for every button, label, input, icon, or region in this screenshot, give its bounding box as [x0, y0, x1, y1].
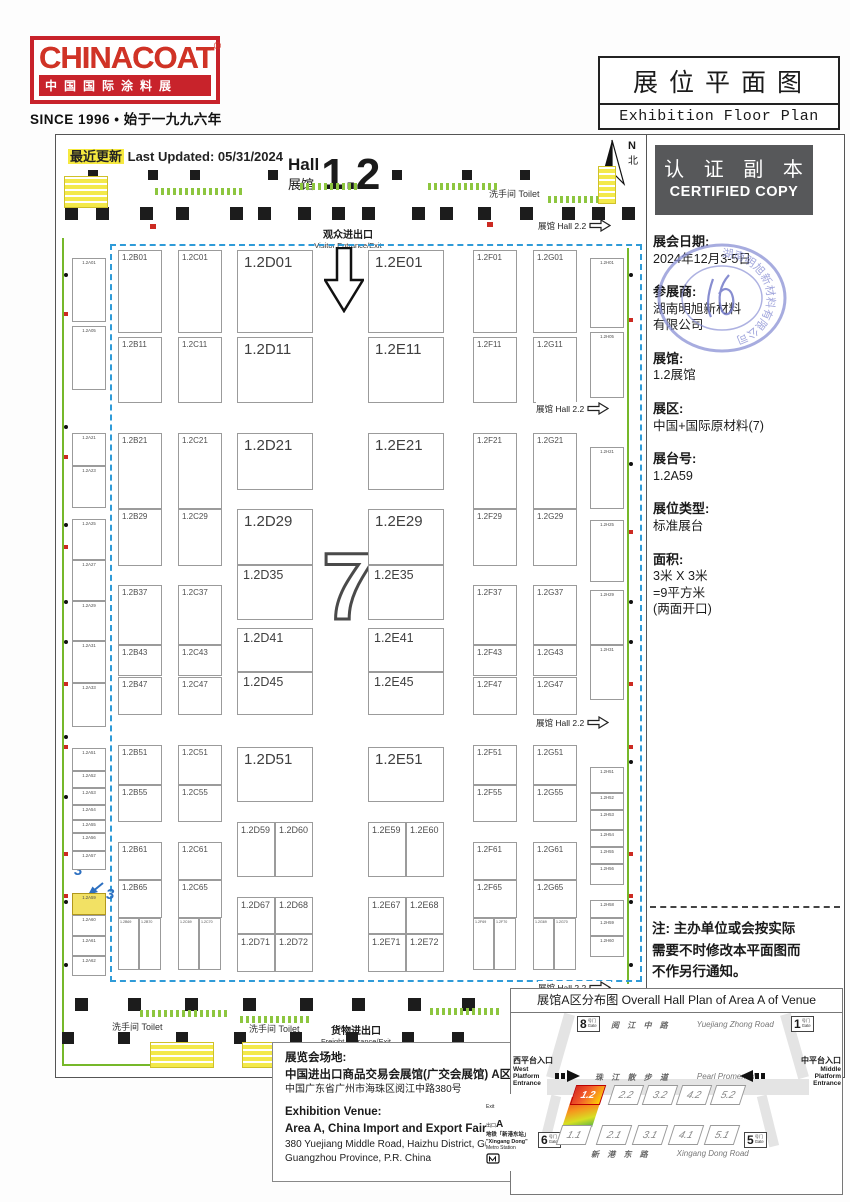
- disclaimer-note: 注: 主办单位或会按实际需要不时修改本平面图而不作另行通知。: [652, 918, 842, 983]
- pillar: [362, 207, 375, 220]
- booth-label: 1.2B29: [119, 510, 161, 521]
- booth-1.2D35: 1.2D35: [237, 565, 313, 620]
- booth-1.2B21: 1.2B21: [118, 433, 162, 509]
- booth-1.2E45: 1.2E45: [368, 672, 444, 715]
- column-dot: [64, 640, 68, 644]
- booth-label: 1.2F55: [474, 786, 516, 797]
- booth-label: 1.2B51: [119, 746, 161, 757]
- booth-1.2F11: 1.2F11: [473, 337, 517, 403]
- pillar: [392, 170, 402, 180]
- booth-label: 1.2H60: [591, 937, 623, 943]
- pillar: [478, 207, 491, 220]
- booth-1.2B47: 1.2B47: [118, 677, 162, 715]
- booth-label: 1.2D29: [238, 510, 312, 530]
- booth-1.2E68: 1.2E68: [406, 897, 444, 934]
- booth-label: 1.2B21: [119, 434, 161, 445]
- booth-1.2A60: 1.2A60: [72, 915, 106, 936]
- booth-label: 1.2D35: [238, 566, 312, 582]
- booth-1.2H52: 1.2H52: [590, 793, 624, 810]
- booth-1.2E29: 1.2E29: [368, 509, 444, 565]
- road-zh: 珠 江 散 步 道: [595, 1072, 671, 1083]
- booth-label: 1.2A52: [73, 772, 105, 778]
- booth-label: 1.2H59: [591, 919, 623, 925]
- overall-hall-plan: 展馆A区分布图 Overall Hall Plan of Area A of V…: [510, 988, 843, 1195]
- booth-label: 1.2F51: [474, 746, 516, 757]
- booth-1.2D29: 1.2D29: [237, 509, 313, 565]
- booth-1.2A21: 1.2A21: [72, 433, 106, 466]
- booth-1.2D45: 1.2D45: [237, 672, 313, 715]
- column-dot: [629, 640, 633, 644]
- booth-label: 1.2C01: [179, 251, 221, 262]
- booth-1.2B51: 1.2B51: [118, 745, 162, 785]
- hall-3.1: 3.1: [632, 1125, 668, 1145]
- exit-letter: A: [496, 1119, 503, 1130]
- column-dot: [64, 425, 68, 429]
- booth-1.2H21: 1.2H21: [590, 447, 624, 509]
- pillar: [243, 998, 256, 1011]
- metro-station-en: Metro Station: [486, 1145, 532, 1151]
- booth-1.2A29: 1.2A29: [72, 601, 106, 641]
- detail-label: 展台号:: [653, 450, 839, 468]
- booth-label: 1.2G61: [534, 843, 576, 854]
- column-dot: [64, 900, 68, 904]
- column-dot: [64, 735, 68, 739]
- booth-1.2A23: 1.2A23: [72, 466, 106, 508]
- booth-label: 1.2H21: [591, 448, 623, 454]
- booth-label: 1.2H52: [591, 794, 623, 800]
- booth-label: 1.2C61: [179, 843, 221, 854]
- detail-field: 参展商:湖南明旭新材料有限公司: [653, 283, 839, 334]
- booth-1.2G01: 1.2G01: [533, 250, 577, 333]
- booth-1.2F29: 1.2F29: [473, 509, 517, 566]
- hall-5.2: 5.2: [710, 1085, 746, 1105]
- hall-label-en: Hall: [288, 156, 319, 173]
- gate-number: 6: [541, 1134, 548, 1146]
- booth-1.2H56: 1.2H56: [590, 864, 624, 885]
- booth-1.2E72: 1.2E72: [406, 934, 444, 972]
- overall-hall-plan-title: 展馆A区分布图 Overall Hall Plan of Area A of V…: [511, 989, 842, 1013]
- pillar: [258, 207, 271, 220]
- hall-1.1: 1.1: [556, 1125, 592, 1145]
- booth-1.2G47: 1.2G47: [533, 677, 577, 715]
- booth-label: 1.2E72: [407, 935, 443, 947]
- logo-brand: CHINACOAT: [39, 40, 214, 75]
- planting-strip: [428, 183, 498, 190]
- pillar: [622, 207, 635, 220]
- hall-4.2: 4.2: [676, 1085, 712, 1105]
- hall-3.2: 3.2: [642, 1085, 678, 1105]
- chinacoat-logo: CHINACOAT® 中国国际涂料展 SINCE 1996 • 始于一九九六年: [30, 36, 240, 128]
- booth-label: 1.2F43: [474, 646, 516, 657]
- booth-1.2A56: 1.2A56: [72, 833, 106, 851]
- booth-1.2E35: 1.2E35: [368, 565, 444, 620]
- booth-label: 1.2D11: [238, 338, 312, 358]
- pillar: [408, 998, 421, 1011]
- last-updated: 最近更新 Last Updated: 05/31/2024: [68, 146, 283, 165]
- booth-label: 1.2D01: [238, 251, 312, 271]
- booth-label: 1.2A05: [73, 327, 105, 333]
- detail-value: 1.2展馆: [653, 367, 839, 384]
- detail-field: 展馆:1.2展馆: [653, 350, 839, 384]
- hall-2-2-direction: 展馆 Hall 2.2: [536, 402, 609, 415]
- hydrant-marker: [629, 682, 633, 686]
- booth-1.2C47: 1.2C47: [178, 677, 222, 715]
- booth-1.2H01: 1.2H01: [590, 258, 624, 328]
- booth-1.2G69: 1.2G69: [533, 918, 554, 970]
- arrow-right-icon: [587, 402, 609, 415]
- booth-label: 1.2F47: [474, 678, 516, 689]
- booth-1.2G61: 1.2G61: [533, 842, 577, 880]
- detail-label: 展区:: [653, 400, 839, 418]
- detail-value: 有限公司: [653, 317, 839, 334]
- booth-1.2C37: 1.2C37: [178, 585, 222, 645]
- booth-label: 1.2A60: [73, 916, 105, 922]
- middle-entrance-zh: 中平台入口: [767, 1057, 841, 1066]
- booth-label: 1.2G47: [534, 678, 576, 689]
- hydrant-marker: [64, 312, 68, 316]
- hydrant-marker: [629, 894, 633, 898]
- pillar: [190, 170, 200, 180]
- detail-value: 3米 X 3米: [653, 568, 839, 585]
- booth-label: 1.2G55: [534, 786, 576, 797]
- logo-subtitle: 中国国际涂料展: [39, 75, 211, 96]
- detail-value: 1.2A59: [653, 468, 839, 485]
- certified-zh: 认 证 副 本: [655, 145, 813, 184]
- gate-number: 5: [747, 1134, 754, 1146]
- hydrant-marker: [629, 318, 633, 322]
- booth-label: 1.2G21: [534, 434, 576, 445]
- booth-1.2G21: 1.2G21: [533, 433, 577, 509]
- detail-label: 展会日期:: [653, 233, 839, 251]
- booth-label: 1.2H01: [591, 259, 623, 265]
- detail-value: =9平方米: [653, 585, 839, 602]
- booth-label: 1.2E01: [369, 251, 443, 271]
- detail-field: 展台号:1.2A59: [653, 450, 839, 484]
- booth-1.2H60: 1.2H60: [590, 936, 624, 957]
- booth-1.2E41: 1.2E41: [368, 628, 444, 672]
- booth-1.2D41: 1.2D41: [237, 628, 313, 672]
- pillar: [352, 998, 365, 1011]
- booth-label: 1.2F61: [474, 843, 516, 854]
- hall-2-2-direction: 展馆 Hall 2.2: [536, 716, 609, 729]
- booth-label: 1.2A55: [73, 821, 105, 827]
- hydrant-marker: [629, 745, 633, 749]
- hall-2-2-label: 展馆 Hall 2.2: [536, 717, 584, 729]
- detail-label: 展馆:: [653, 350, 839, 368]
- pillar: [62, 1032, 74, 1044]
- west-entrance-zh: 西平台入口: [513, 1057, 553, 1066]
- booth-1.2H54: 1.2H54: [590, 830, 624, 847]
- booth-label: 1.2F65: [474, 881, 516, 892]
- booth-label: 1.2D21: [238, 434, 312, 454]
- booth-label: 1.2H51: [591, 768, 623, 774]
- planting-strip: [240, 1016, 310, 1023]
- booth-label: 1.2D71: [238, 935, 274, 947]
- booth-label: 1.2H58: [591, 901, 623, 907]
- booth-1.2A01: 1.2A01: [72, 258, 106, 322]
- page-title-zh: 展位平面图: [600, 58, 838, 105]
- plan-bottom-boundary: [62, 1064, 154, 1066]
- booth-details: 展会日期:2024年12月3-5日参展商:湖南明旭新材料有限公司展馆:1.2展馆…: [653, 233, 839, 634]
- road-label: 新 港 东 路Xingang Dong Road: [591, 1149, 749, 1160]
- certified-copy-badge: 认 证 副 本 CERTIFIED COPY: [655, 145, 813, 215]
- booth-label: 1.2H56: [591, 865, 623, 871]
- booth-label: 1.2E29: [369, 510, 443, 530]
- detail-field: 展会日期:2024年12月3-5日: [653, 233, 839, 267]
- booth-label: 1.2G51: [534, 746, 576, 757]
- booth-1.2D51: 1.2D51: [237, 747, 313, 802]
- booth-1.2F69: 1.2F69: [473, 918, 494, 970]
- booth-1.2E67: 1.2E67: [368, 897, 406, 934]
- booth-1.2D68: 1.2D68: [275, 897, 313, 934]
- booth-label: 1.2H31: [591, 646, 623, 652]
- booth-label: 1.2G11: [534, 338, 576, 349]
- booth-label: 1.2D67: [238, 898, 274, 910]
- booth-1.2A27: 1.2A27: [72, 560, 106, 601]
- column-dot: [629, 963, 633, 967]
- booth-label: 1.2H29: [591, 591, 623, 597]
- gate-8: 8号门Gate: [577, 1016, 600, 1032]
- pillar: [520, 170, 530, 180]
- booth-1.2F01: 1.2F01: [473, 250, 517, 333]
- booth-label: 1.2E21: [369, 434, 443, 454]
- booth-label: 1.2C21: [179, 434, 221, 445]
- booth-label: 1.2F37: [474, 586, 516, 597]
- detail-value: 标准展台: [653, 518, 839, 535]
- column-dot: [64, 963, 68, 967]
- booth-1.2C70: 1.2C70: [199, 918, 221, 970]
- logo-box: CHINACOAT® 中国国际涂料展: [30, 36, 220, 104]
- detail-value: 2024年12月3-5日: [653, 251, 839, 268]
- column-dot: [629, 900, 633, 904]
- west-entrance-en: Platform: [513, 1073, 553, 1080]
- booth-1.2C69: 1.2C69: [178, 918, 199, 970]
- metro-station-zh: 地铁「新港东站」: [486, 1132, 532, 1138]
- booth-label: 1.2B70: [140, 919, 160, 924]
- booth-1.2B55: 1.2B55: [118, 785, 162, 822]
- booth-label: 1.2G70: [555, 919, 575, 924]
- booth-label: 1.2B61: [119, 843, 161, 854]
- booth-label: 1.2B69: [119, 919, 138, 924]
- hall-2-2-direction: 展馆 Hall 2.2: [538, 219, 611, 232]
- booth-label: 1.2A31: [73, 642, 105, 648]
- last-updated-zh: 最近更新: [68, 149, 124, 164]
- hydrant-marker: [64, 894, 68, 898]
- booth-label: 1.2C51: [179, 746, 221, 757]
- booth-label: 1.2G43: [534, 646, 576, 657]
- booth-1.2D72: 1.2D72: [275, 934, 313, 972]
- registered-mark-icon: ®: [214, 41, 220, 52]
- booth-1.2H58: 1.2H58: [590, 900, 624, 918]
- escalator-block: [150, 1042, 214, 1068]
- detail-value: 湖南明旭新材料: [653, 301, 839, 318]
- detail-label: 展位类型:: [653, 500, 839, 518]
- booth-label: 1.2E67: [369, 898, 405, 910]
- hydrant-marker: [64, 682, 68, 686]
- road-en: Xingang Dong Road: [677, 1149, 749, 1160]
- booth-label: 1.2G01: [534, 251, 576, 262]
- booth-label: 1.2E41: [369, 629, 443, 645]
- booth-label: 1.2F01: [474, 251, 516, 262]
- pillar: [230, 207, 243, 220]
- detail-label: 面积:: [653, 551, 839, 569]
- booth-1.2F61: 1.2F61: [473, 842, 517, 880]
- pillar: [65, 207, 78, 220]
- booth-1.2C65: 1.2C65: [178, 880, 222, 918]
- booth-1.2A61: 1.2A61: [72, 936, 106, 956]
- booth-1.2A53: 1.2A53: [72, 788, 106, 805]
- pillar: [440, 207, 453, 220]
- road-zh: 新 港 东 路: [591, 1149, 651, 1160]
- booth-label: 1.2A61: [73, 937, 105, 943]
- booth-label: 1.2D51: [238, 748, 312, 768]
- booth-1.2H55: 1.2H55: [590, 847, 624, 864]
- booth-label: 1.2C55: [179, 786, 221, 797]
- pillar: [96, 207, 109, 220]
- booth-label: 1.2G65: [534, 881, 576, 892]
- booth-label: 1.2F21: [474, 434, 516, 445]
- booth-label: 1.2A62: [73, 957, 105, 963]
- booth-label: 1.2C29: [179, 510, 221, 521]
- planting-strip: [155, 188, 245, 195]
- booth-1.2C29: 1.2C29: [178, 509, 222, 566]
- sidebar-divider: [646, 134, 647, 1076]
- booth-1.2H05: 1.2H05: [590, 332, 624, 398]
- road-label: 珠 江 散 步 道Pearl Promenade: [595, 1072, 759, 1083]
- booth-label: 1.2E51: [369, 748, 443, 768]
- road-zh: 阅 江 中 路: [611, 1020, 671, 1031]
- gate-number: 1: [794, 1018, 801, 1030]
- logo-brand-text: CHINACOAT®: [39, 42, 211, 73]
- booth-label: 1.2E35: [369, 566, 443, 582]
- booth-1.2C55: 1.2C55: [178, 785, 222, 822]
- booth-1.2H51: 1.2H51: [590, 767, 624, 793]
- booth-1.2E51: 1.2E51: [368, 747, 444, 802]
- compass-bei-label: 北: [628, 152, 638, 167]
- booth-label: 1.2E59: [369, 823, 405, 835]
- detail-field: 面积:3米 X 3米=9平方米(两面开口): [653, 551, 839, 618]
- booth-label: 1.2E45: [369, 673, 443, 689]
- booth-label: 1.2A59: [73, 894, 105, 900]
- west-platform-entrance: 西平台入口WestPlatformEntrance: [513, 1057, 553, 1087]
- booth-1.2F47: 1.2F47: [473, 677, 517, 715]
- booth-label: 1.2E71: [369, 935, 405, 947]
- note-line: 需要不时修改本平面图而: [652, 940, 842, 962]
- column-dot: [629, 600, 633, 604]
- pillar: [298, 207, 311, 220]
- gate-en: Gate: [802, 1024, 811, 1029]
- booth-1.2A51: 1.2A51: [72, 748, 106, 771]
- booth-label: 1.2E11: [369, 338, 443, 358]
- booth-label: 1.2E60: [407, 823, 443, 835]
- pillar: [412, 207, 425, 220]
- detail-value: 中国+国际原材料(7): [653, 418, 839, 435]
- booth-1.2F43: 1.2F43: [473, 645, 517, 676]
- booth-label: 1.2D45: [238, 673, 312, 689]
- booth-1.2G11: 1.2G11: [533, 337, 577, 403]
- pillar: [562, 207, 575, 220]
- booth-1.2D21: 1.2D21: [237, 433, 313, 490]
- booth-1.2D11: 1.2D11: [237, 337, 313, 403]
- note-line: 不作另行通知。: [652, 961, 842, 983]
- booth-label: 1.2A51: [73, 749, 105, 755]
- pillar: [140, 207, 153, 220]
- pillar: [462, 170, 472, 180]
- booth-1.2B01: 1.2B01: [118, 250, 162, 333]
- middle-entrance-en: Middle: [767, 1066, 841, 1073]
- booth-1.2E71: 1.2E71: [368, 934, 406, 972]
- booth-1.2B43: 1.2B43: [118, 645, 162, 676]
- hydrant-marker: [64, 455, 68, 459]
- booth-1.2G51: 1.2G51: [533, 745, 577, 785]
- booth-1.2A59: 1.2A59: [72, 893, 106, 915]
- booth-1.2A31: 1.2A31: [72, 641, 106, 683]
- booth-label: 1.2A56: [73, 834, 105, 840]
- booth-label: 1.2H54: [591, 831, 623, 837]
- visitor-entrance-zh: 观众进出口: [288, 226, 408, 241]
- hydrant-marker: [64, 852, 68, 856]
- logo-since: SINCE 1996 • 始于一九九六年: [30, 108, 240, 128]
- booth-1.2F51: 1.2F51: [473, 745, 517, 785]
- west-entrance-en: West: [513, 1066, 553, 1073]
- booth-label: 1.2D41: [238, 629, 312, 645]
- fire-marker: [487, 222, 493, 227]
- hall-2-2-label: 展馆 Hall 2.2: [538, 220, 586, 232]
- booth-1.2B65: 1.2B65: [118, 880, 162, 918]
- booth-label: 1.2G29: [534, 510, 576, 521]
- pillar: [148, 170, 158, 180]
- hall-2.1: 2.1: [596, 1125, 632, 1145]
- booth-label: 1.2B01: [119, 251, 161, 262]
- booth-label: 1.2D72: [276, 935, 312, 947]
- west-entrance-en: Entrance: [513, 1080, 553, 1087]
- booth-1.2E60: 1.2E60: [406, 822, 444, 877]
- booth-label: 1.2A33: [73, 684, 105, 690]
- booth-label: 1.2B55: [119, 786, 161, 797]
- booth-1.2C51: 1.2C51: [178, 745, 222, 785]
- hall-5.1: 5.1: [704, 1125, 740, 1145]
- booth-1.2F37: 1.2F37: [473, 585, 517, 645]
- column-dot: [64, 273, 68, 277]
- booth-label: 1.2C43: [179, 646, 221, 657]
- middle-entrance-en: Entrance: [767, 1080, 841, 1087]
- booth-1.2D71: 1.2D71: [237, 934, 275, 972]
- pillar: [176, 207, 189, 220]
- compass-n-label: N: [628, 140, 636, 152]
- gate-en: Gate: [588, 1024, 597, 1029]
- column-dot: [64, 523, 68, 527]
- booth-label: 1.2H53: [591, 811, 623, 817]
- booth-label: 1.2A57: [73, 852, 105, 858]
- booth-1.2B11: 1.2B11: [118, 337, 162, 403]
- hydrant-marker: [64, 745, 68, 749]
- booth-1.2F70: 1.2F70: [494, 918, 516, 970]
- booth-1.2H25: 1.2H25: [590, 520, 624, 582]
- booth-label: 1.2B11: [119, 338, 161, 349]
- booth-1.2G55: 1.2G55: [533, 785, 577, 822]
- page: CHINACOAT® 中国国际涂料展 SINCE 1996 • 始于一九九六年 …: [0, 0, 850, 1202]
- hall-4.1: 4.1: [668, 1125, 704, 1145]
- booth-label: 1.2B47: [119, 678, 161, 689]
- booth-label: 1.2G69: [534, 919, 553, 924]
- booth-1.2G37: 1.2G37: [533, 585, 577, 645]
- booth-label: 1.2B37: [119, 586, 161, 597]
- booth-label: 1.2F11: [474, 338, 516, 349]
- arrow-right-icon: [587, 716, 609, 729]
- booth-label: 1.2B43: [119, 646, 161, 657]
- pillar: [300, 998, 313, 1011]
- detail-field: 展位类型:标准展台: [653, 500, 839, 534]
